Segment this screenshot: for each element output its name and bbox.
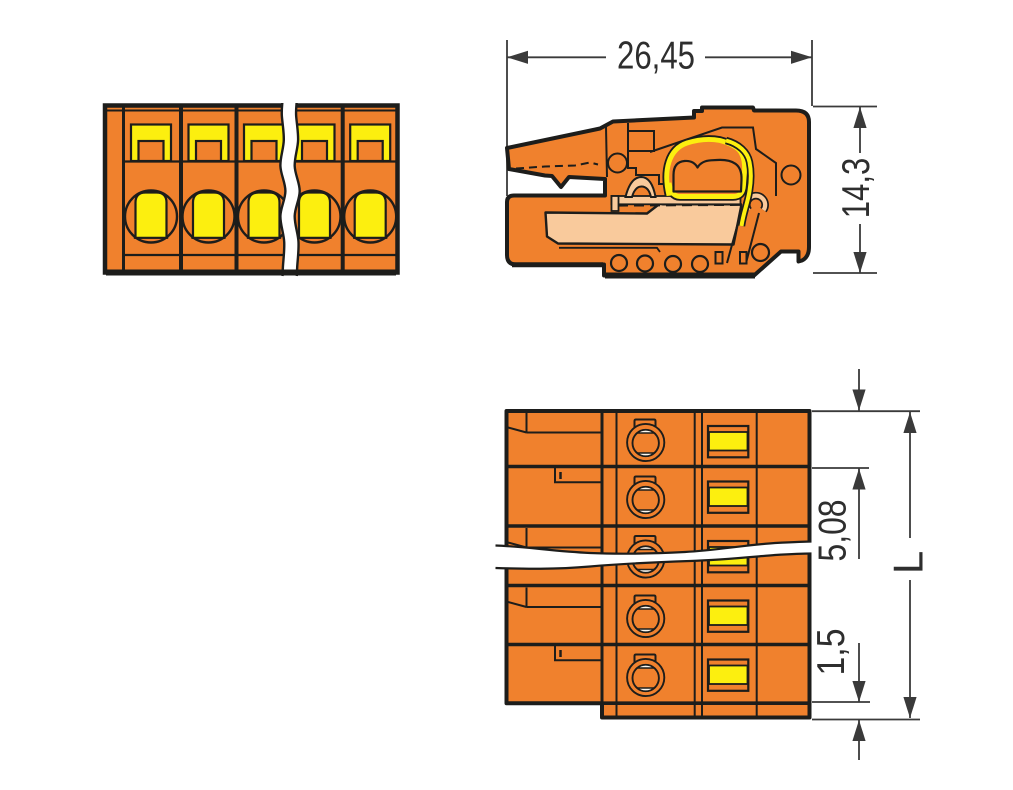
svg-text:14,3: 14,3: [835, 158, 878, 219]
svg-text:26,45: 26,45: [617, 35, 695, 78]
svg-text:5,08: 5,08: [812, 500, 855, 562]
svg-text:1,5: 1,5: [810, 629, 853, 676]
svg-text:L: L: [885, 551, 932, 574]
